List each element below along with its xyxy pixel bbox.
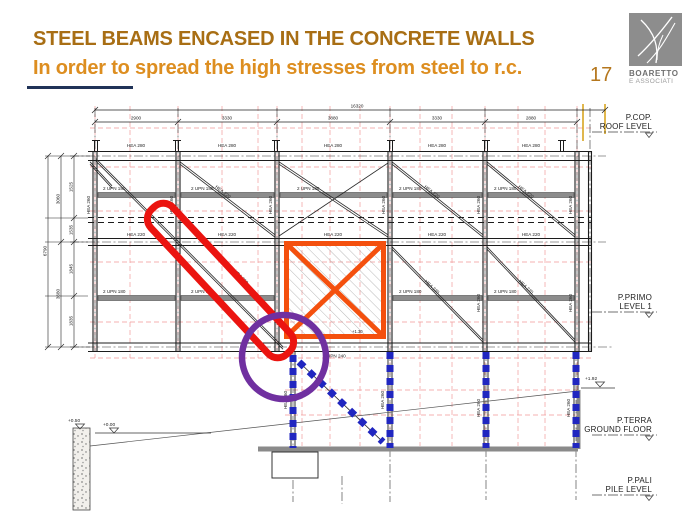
label-column: HEA 260 xyxy=(476,293,481,312)
label-mid-chord: HEA 220 xyxy=(428,232,447,237)
dim-top-seg-4: 2880 xyxy=(526,116,537,121)
svg-text:P.PRIMO: P.PRIMO xyxy=(618,293,652,302)
label-bottom-chord: UPN 240 xyxy=(327,354,346,359)
dim-top-seg-0: 2900 xyxy=(131,116,142,121)
label-floor-beam: 2 UPN 180 xyxy=(103,289,126,294)
svg-text:P.COP.: P.COP. xyxy=(626,113,652,122)
svg-text:ROOF LEVEL: ROOF LEVEL xyxy=(600,122,653,131)
label-mid-chord: HEA 220 xyxy=(522,232,541,237)
label-column: HEA 260 xyxy=(568,195,573,214)
label-floor-beam: 2 UPN 180 xyxy=(399,186,422,191)
label-floor-beam: 2 UPN 180 xyxy=(399,289,422,294)
svg-text:P.TERRA: P.TERRA xyxy=(617,416,653,425)
label-top-chord: HEA 280 xyxy=(218,143,237,148)
label-floor-beam: 2 UPN 180 xyxy=(297,186,320,191)
svg-text:GROUND FLOOR: GROUND FLOOR xyxy=(584,425,652,434)
elevation-drawing: 16320 2900 3330 3880 3330 2880 1525 1535… xyxy=(0,0,700,525)
dim-left-inner-3: 1835 xyxy=(69,315,74,326)
label-column: HEA 260 xyxy=(476,398,481,417)
elevation-right-ground: +1.92 xyxy=(585,376,597,382)
elevation-left-ground: +0.00 xyxy=(103,422,115,428)
foundation-block xyxy=(272,452,318,478)
dim-top-seg-2: 3880 xyxy=(328,116,339,121)
slide: STEEL BEAMS ENCASED IN THE CONCRETE WALL… xyxy=(0,0,700,525)
dim-total-top: 16320 xyxy=(351,104,364,109)
dim-left-total: 6790 xyxy=(43,245,48,256)
dim-left-mid-1: 3680 xyxy=(56,288,61,299)
dim-left-inner-2: 1845 xyxy=(69,263,74,274)
dim-top-seg-3: 3330 xyxy=(432,116,443,121)
label-floor-beam: 2 UPN 180 xyxy=(494,186,517,191)
elevation-wall-top: +0.50 xyxy=(68,418,80,424)
svg-text:LEVEL 1: LEVEL 1 xyxy=(619,302,652,311)
level-label-roof: P.COP. ROOF LEVEL xyxy=(592,113,657,138)
lower-columns xyxy=(291,352,578,447)
left-dimension-lines xyxy=(45,153,90,350)
label-floor-beam: 2 UPN 180 xyxy=(494,289,517,294)
dim-left-inner-1: 1535 xyxy=(69,224,74,235)
dim-top-seg-1: 3330 xyxy=(222,116,233,121)
dim-left-mid-0: 3060 xyxy=(56,193,61,204)
label-mid-chord: HEA 220 xyxy=(127,232,146,237)
label-column: HEA 260 xyxy=(566,398,571,417)
label-top-chord: HEA 280 xyxy=(127,143,146,148)
label-mid-chord: HEA 220 xyxy=(218,232,237,237)
label-column: HEA 260 xyxy=(86,195,91,214)
label-diagonal: HEA 220 xyxy=(518,279,535,295)
dim-left-inner-0: 1525 xyxy=(69,181,74,192)
label-floor-beam: 2 UPN 180 xyxy=(191,186,214,191)
level-labels: P.COP. ROOF LEVEL P.PRIMO LEVEL 1 P.TERR… xyxy=(584,113,657,501)
label-column: HEA 260 xyxy=(381,195,386,214)
hidden-beam-dashed-band xyxy=(88,218,592,223)
retaining-wall-hatch xyxy=(73,428,90,510)
svg-text:PILE LEVEL: PILE LEVEL xyxy=(606,485,653,494)
label-top-chord: HEA 280 xyxy=(428,143,447,148)
label-diagonal: HEA 220 xyxy=(424,279,441,295)
label-column: HEA 260 xyxy=(568,293,573,312)
encased-steel-markers xyxy=(293,352,576,448)
level-label-first: P.PRIMO LEVEL 1 xyxy=(592,293,657,318)
svg-text:P.PALI: P.PALI xyxy=(628,476,652,485)
label-mid-chord: HEA 220 xyxy=(324,232,343,237)
label-top-chord: HEA 280 xyxy=(324,143,343,148)
level-label-pile: P.PALI PILE LEVEL xyxy=(592,476,657,501)
label-column: HEA 260 xyxy=(380,390,385,409)
label-column: HEA 260 xyxy=(268,195,273,214)
label-column: HEA 260 xyxy=(476,195,481,214)
label-top-chord: HEA 280 xyxy=(522,143,541,148)
level-label-ground: P.TERRA GROUND FLOOR xyxy=(584,416,657,441)
label-floor-beam: 2 UPN 180 xyxy=(103,186,126,191)
